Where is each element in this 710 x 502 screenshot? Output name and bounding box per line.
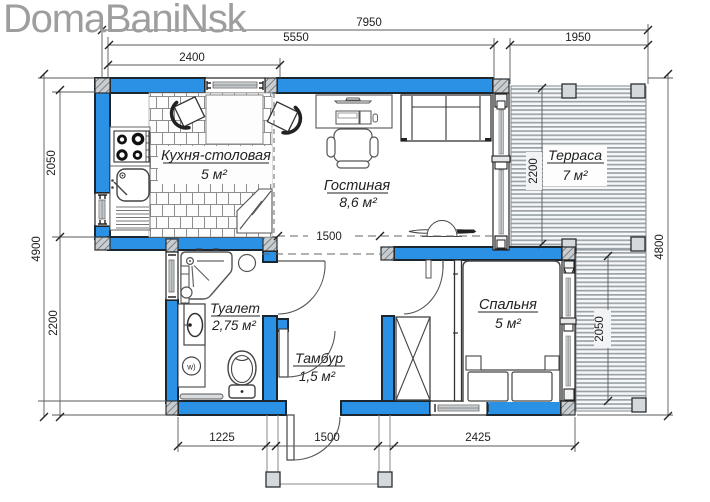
svg-text:1500: 1500 xyxy=(314,432,340,444)
svg-text:1950: 1950 xyxy=(565,32,591,44)
svg-text:4800: 4800 xyxy=(654,234,666,260)
svg-text:1,5 м²: 1,5 м² xyxy=(299,369,336,384)
svg-text:1500: 1500 xyxy=(316,231,342,243)
svg-text:2050: 2050 xyxy=(46,150,58,176)
svg-text:w): w) xyxy=(186,363,196,372)
svg-text:Спальня: Спальня xyxy=(479,297,537,313)
svg-text:5 м²: 5 м² xyxy=(495,315,522,331)
svg-text:7950: 7950 xyxy=(356,17,382,29)
svg-text:8,6 м²: 8,6 м² xyxy=(339,194,378,210)
svg-text:5550: 5550 xyxy=(283,32,309,44)
svg-text:2,75 м²: 2,75 м² xyxy=(211,318,256,333)
svg-text:Терраса: Терраса xyxy=(548,147,602,163)
svg-text:Кухня-столовая: Кухня-столовая xyxy=(161,148,271,164)
svg-text:7 м²: 7 м² xyxy=(562,168,588,183)
svg-text:1225: 1225 xyxy=(209,432,235,444)
svg-text:2200: 2200 xyxy=(48,310,60,336)
svg-text:2200: 2200 xyxy=(528,158,540,184)
svg-text:2425: 2425 xyxy=(465,432,491,444)
svg-text:DomaBaniNsk: DomaBaniNsk xyxy=(3,0,248,41)
svg-text:4900: 4900 xyxy=(31,236,43,262)
svg-text:2050: 2050 xyxy=(594,316,606,342)
svg-text:2400: 2400 xyxy=(179,52,205,64)
svg-text:5 м²: 5 м² xyxy=(201,166,228,182)
svg-text:Тамбур: Тамбур xyxy=(295,350,343,366)
svg-text:Туалет: Туалет xyxy=(210,300,260,316)
svg-text:Гостиная: Гостиная xyxy=(324,178,391,194)
